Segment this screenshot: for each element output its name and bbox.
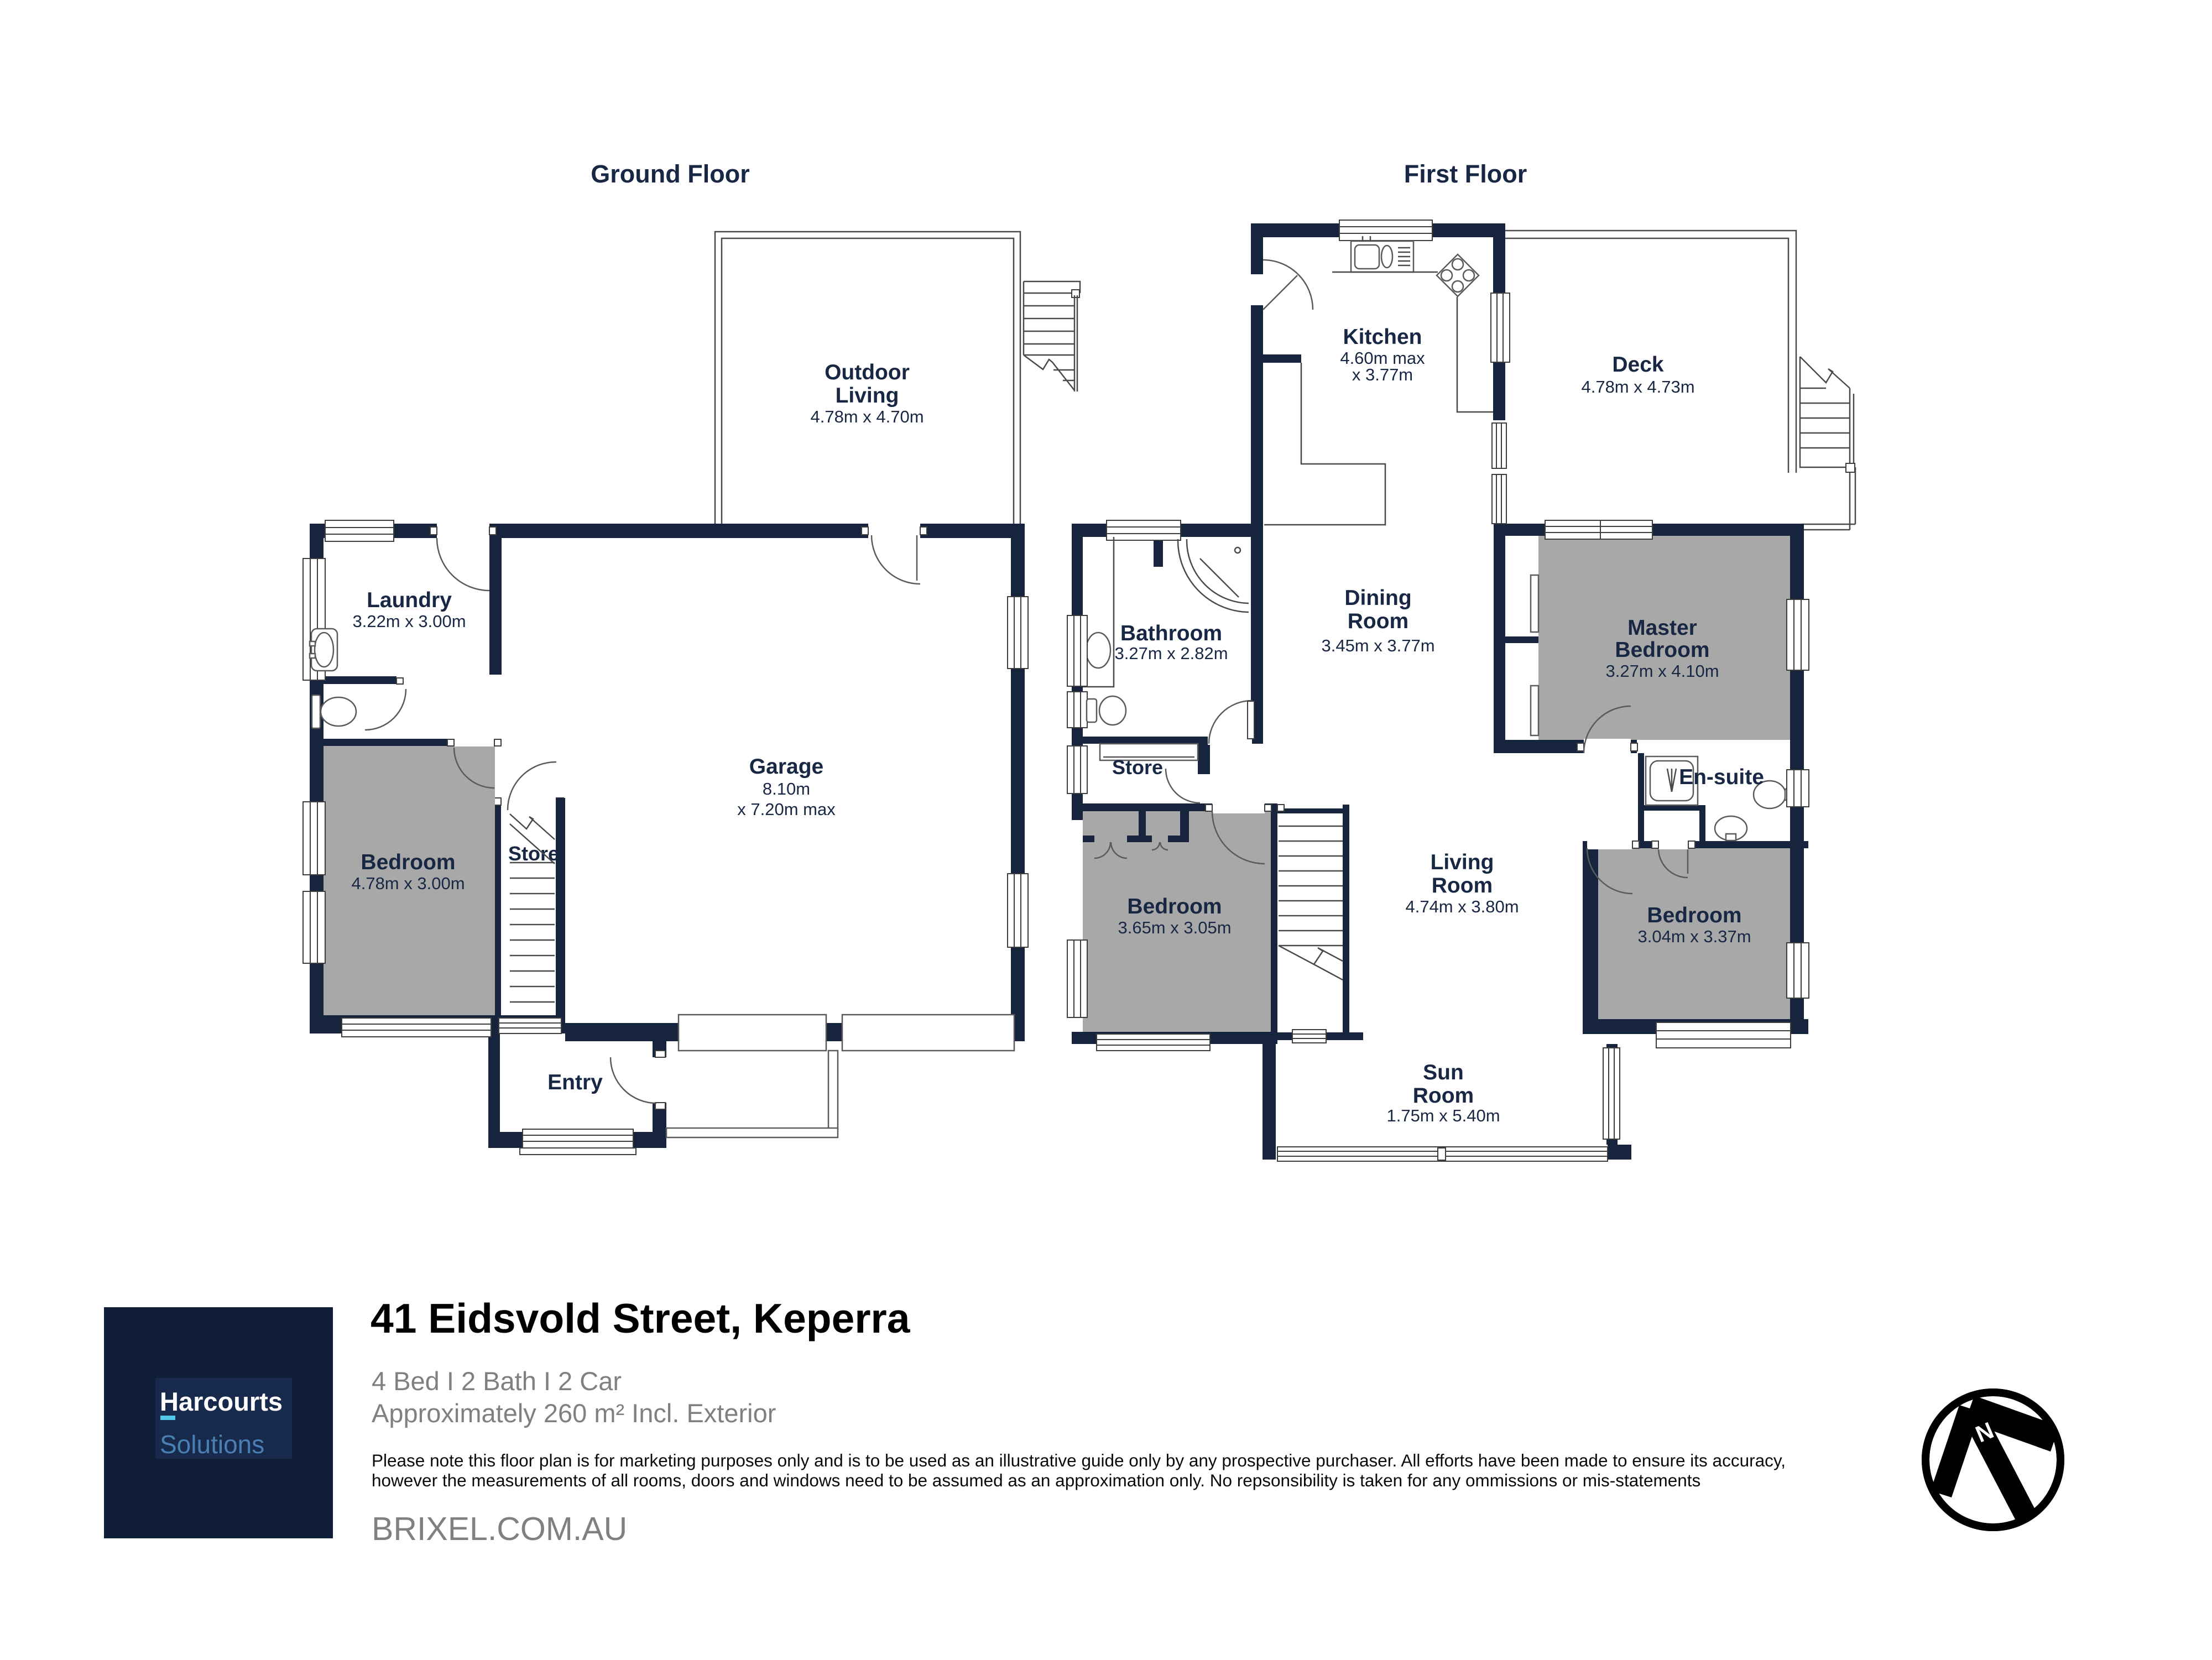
svg-text:Master: Master: [1627, 616, 1697, 640]
svg-text:4 Bed I 2 Bath I 2 Car: 4 Bed I 2 Bath I 2 Car: [372, 1366, 622, 1396]
svg-text:1.75m x 5.40m: 1.75m x 5.40m: [1386, 1106, 1500, 1125]
svg-text:Room: Room: [1413, 1084, 1474, 1108]
svg-text:41 Eidsvold Street, Keperra: 41 Eidsvold Street, Keperra: [371, 1295, 911, 1341]
svg-text:Approximately 260 m² Incl. Ext: Approximately 260 m² Incl. Exterior: [372, 1398, 776, 1428]
svg-text:4.78m x 4.73m: 4.78m x 4.73m: [1581, 377, 1694, 396]
svg-text:x 3.77m: x 3.77m: [1352, 365, 1413, 384]
svg-text:Harcourts: Harcourts: [160, 1387, 283, 1416]
svg-text:3.65m x 3.05m: 3.65m x 3.05m: [1118, 918, 1231, 937]
svg-text:Please note this floor plan is: Please note this floor plan is for marke…: [372, 1450, 1786, 1470]
svg-text:Living: Living: [836, 384, 899, 408]
svg-text:Bathroom: Bathroom: [1120, 622, 1222, 645]
svg-text:Living: Living: [1431, 850, 1494, 874]
svg-text:Dining: Dining: [1344, 586, 1411, 610]
svg-text:BRIXEL.COM.AU: BRIXEL.COM.AU: [372, 1511, 627, 1547]
svg-text:Bedroom: Bedroom: [1647, 904, 1741, 927]
svg-text:Deck: Deck: [1612, 353, 1664, 377]
svg-text:8.10m: 8.10m: [763, 779, 810, 798]
svg-text:Kitchen: Kitchen: [1343, 325, 1422, 349]
svg-text:4.78m x 4.70m: 4.78m x 4.70m: [810, 407, 924, 426]
svg-text:En-suite: En-suite: [1679, 765, 1764, 789]
svg-text:Ground Floor: Ground Floor: [591, 160, 749, 188]
svg-text:4.74m x 3.80m: 4.74m x 3.80m: [1405, 897, 1519, 916]
svg-text:however the measurements of al: however the measurements of all rooms, d…: [372, 1470, 1700, 1490]
svg-text:x 7.20m max: x 7.20m max: [737, 800, 836, 819]
svg-text:4.78m x 3.00m: 4.78m x 3.00m: [351, 874, 465, 893]
svg-text:Solutions: Solutions: [160, 1430, 264, 1459]
svg-text:Entry: Entry: [547, 1071, 603, 1094]
svg-text:3.04m x 3.37m: 3.04m x 3.37m: [1637, 927, 1751, 946]
svg-text:Sun: Sun: [1423, 1061, 1464, 1084]
svg-text:Room: Room: [1348, 609, 1409, 633]
svg-text:Room: Room: [1432, 874, 1493, 897]
svg-text:Bedroom: Bedroom: [1127, 895, 1222, 918]
svg-text:Outdoor: Outdoor: [825, 361, 910, 384]
svg-text:3.27m x 2.82m: 3.27m x 2.82m: [1114, 644, 1228, 663]
svg-text:Bedroom: Bedroom: [361, 850, 455, 874]
svg-text:3.22m x 3.00m: 3.22m x 3.00m: [352, 612, 466, 631]
svg-text:First Floor: First Floor: [1404, 160, 1527, 188]
svg-text:Laundry: Laundry: [367, 588, 452, 612]
svg-text:3.27m x 4.10m: 3.27m x 4.10m: [1605, 661, 1719, 681]
svg-text:Bedroom: Bedroom: [1615, 638, 1709, 662]
svg-text:3.45m x 3.77m: 3.45m x 3.77m: [1321, 636, 1434, 655]
svg-text:Garage: Garage: [749, 755, 823, 779]
svg-text:Store: Store: [1112, 756, 1163, 779]
